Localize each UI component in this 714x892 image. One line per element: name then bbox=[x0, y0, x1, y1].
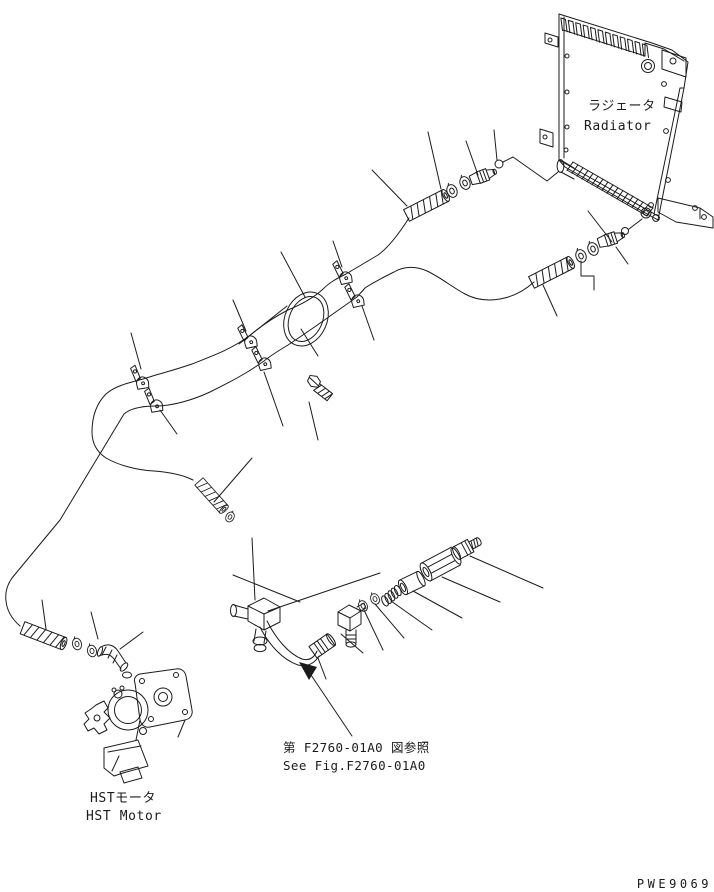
washer-ring bbox=[444, 181, 459, 199]
hose-clamp bbox=[237, 322, 258, 350]
hst-motor-drawing bbox=[84, 669, 192, 783]
hose-end-sleeve bbox=[404, 188, 451, 221]
hose-clamp bbox=[130, 363, 150, 391]
upper-port-fittings bbox=[404, 157, 558, 221]
radiator-label-en: Radiator bbox=[584, 119, 651, 134]
flange-bolt bbox=[304, 373, 335, 401]
hose-loop bbox=[275, 285, 336, 356]
hst-motor-label-en: HST Motor bbox=[86, 809, 162, 824]
parts-diagram-page: ラジェータ Radiator HSTモータ HST Motor 第 F2760-… bbox=[0, 0, 714, 892]
hose-end-sleeve bbox=[529, 255, 576, 288]
swivel-nut bbox=[309, 633, 337, 658]
valve-body bbox=[418, 546, 464, 583]
figure-reference-arrow bbox=[299, 662, 352, 736]
figure-ref-jp: 第 F2760-01A0 図参照 bbox=[283, 740, 430, 755]
tube-assembly bbox=[231, 598, 367, 666]
nipple-fitting bbox=[469, 166, 499, 187]
exploded-valve-parts bbox=[356, 534, 483, 613]
radiator-label-jp: ラジェータ bbox=[588, 99, 656, 114]
elbow-fitting bbox=[338, 603, 366, 647]
o-ring bbox=[356, 598, 369, 613]
hose-clamp bbox=[144, 386, 164, 414]
port-pipe-line bbox=[503, 157, 558, 181]
hst-motor-label-jp: HSTモータ bbox=[90, 791, 156, 806]
figure-ref-en: See Fig.F2760-01A0 bbox=[283, 758, 426, 773]
threaded-plug bbox=[451, 534, 484, 560]
o-ring bbox=[368, 591, 381, 606]
lower-port-fittings bbox=[529, 219, 642, 288]
o-ring bbox=[495, 160, 503, 168]
hose-clamp-ring bbox=[86, 643, 98, 658]
o-ring bbox=[622, 228, 629, 235]
parts-diagram: ラジェータ Radiator HSTモータ HST Motor 第 F2760-… bbox=[0, 0, 714, 892]
tee-block-fitting bbox=[231, 598, 281, 652]
washer-ring bbox=[224, 509, 237, 523]
motor-hose-fittings bbox=[20, 622, 129, 673]
bent-inlet-tube bbox=[96, 645, 129, 673]
radiator-core-hatch bbox=[567, 162, 653, 216]
leader-lines bbox=[42, 130, 628, 679]
hose-clamp bbox=[344, 281, 365, 309]
hose-clamp-ring bbox=[71, 636, 83, 651]
hose-clamps bbox=[130, 258, 365, 414]
lower-hose-line bbox=[6, 267, 534, 626]
hose-end-sleeve bbox=[20, 622, 68, 651]
upper-hose-line bbox=[92, 218, 409, 480]
drawing-code: PWE9069 bbox=[637, 877, 712, 891]
